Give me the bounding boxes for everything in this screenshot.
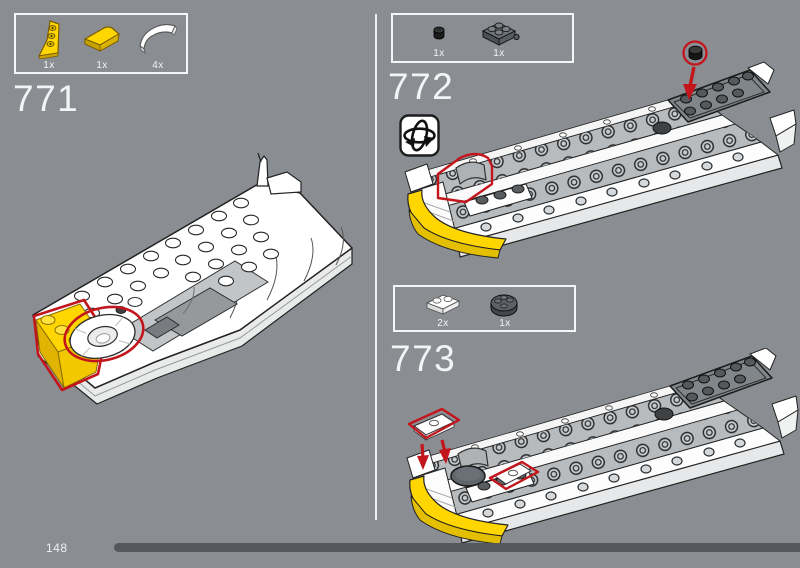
- part-count: 4x: [152, 60, 164, 71]
- assembly-772-image: [398, 12, 800, 278]
- part-item: 1x: [28, 17, 70, 71]
- assembly-773-image: [398, 348, 800, 548]
- progress-bar: [114, 543, 800, 552]
- part-count: 1x: [499, 318, 511, 329]
- yellow-wedge-plate-icon: [28, 17, 70, 59]
- assembly-771-image: [5, 148, 370, 423]
- part-item: 1x: [483, 289, 527, 329]
- part-count: 1x: [96, 60, 108, 71]
- parts-box-771: 1x 1x 4x: [14, 13, 188, 74]
- white-plate-1x2-icon: [421, 289, 465, 317]
- column-divider: [375, 14, 377, 520]
- part-item: 2x: [421, 289, 465, 329]
- part-count: 1x: [43, 60, 55, 71]
- part-count: 2x: [437, 318, 449, 329]
- step-number-771: 771: [13, 80, 79, 118]
- dark-gray-round-plate-2x2-icon: [483, 289, 527, 317]
- page-number: 148: [46, 542, 68, 554]
- white-curved-slope-icon: [134, 17, 182, 59]
- parts-box-773: 2x 1x: [393, 285, 576, 332]
- part-item: 1x: [80, 17, 124, 71]
- yellow-curved-slope-icon: [80, 17, 124, 59]
- part-item: 4x: [134, 17, 182, 71]
